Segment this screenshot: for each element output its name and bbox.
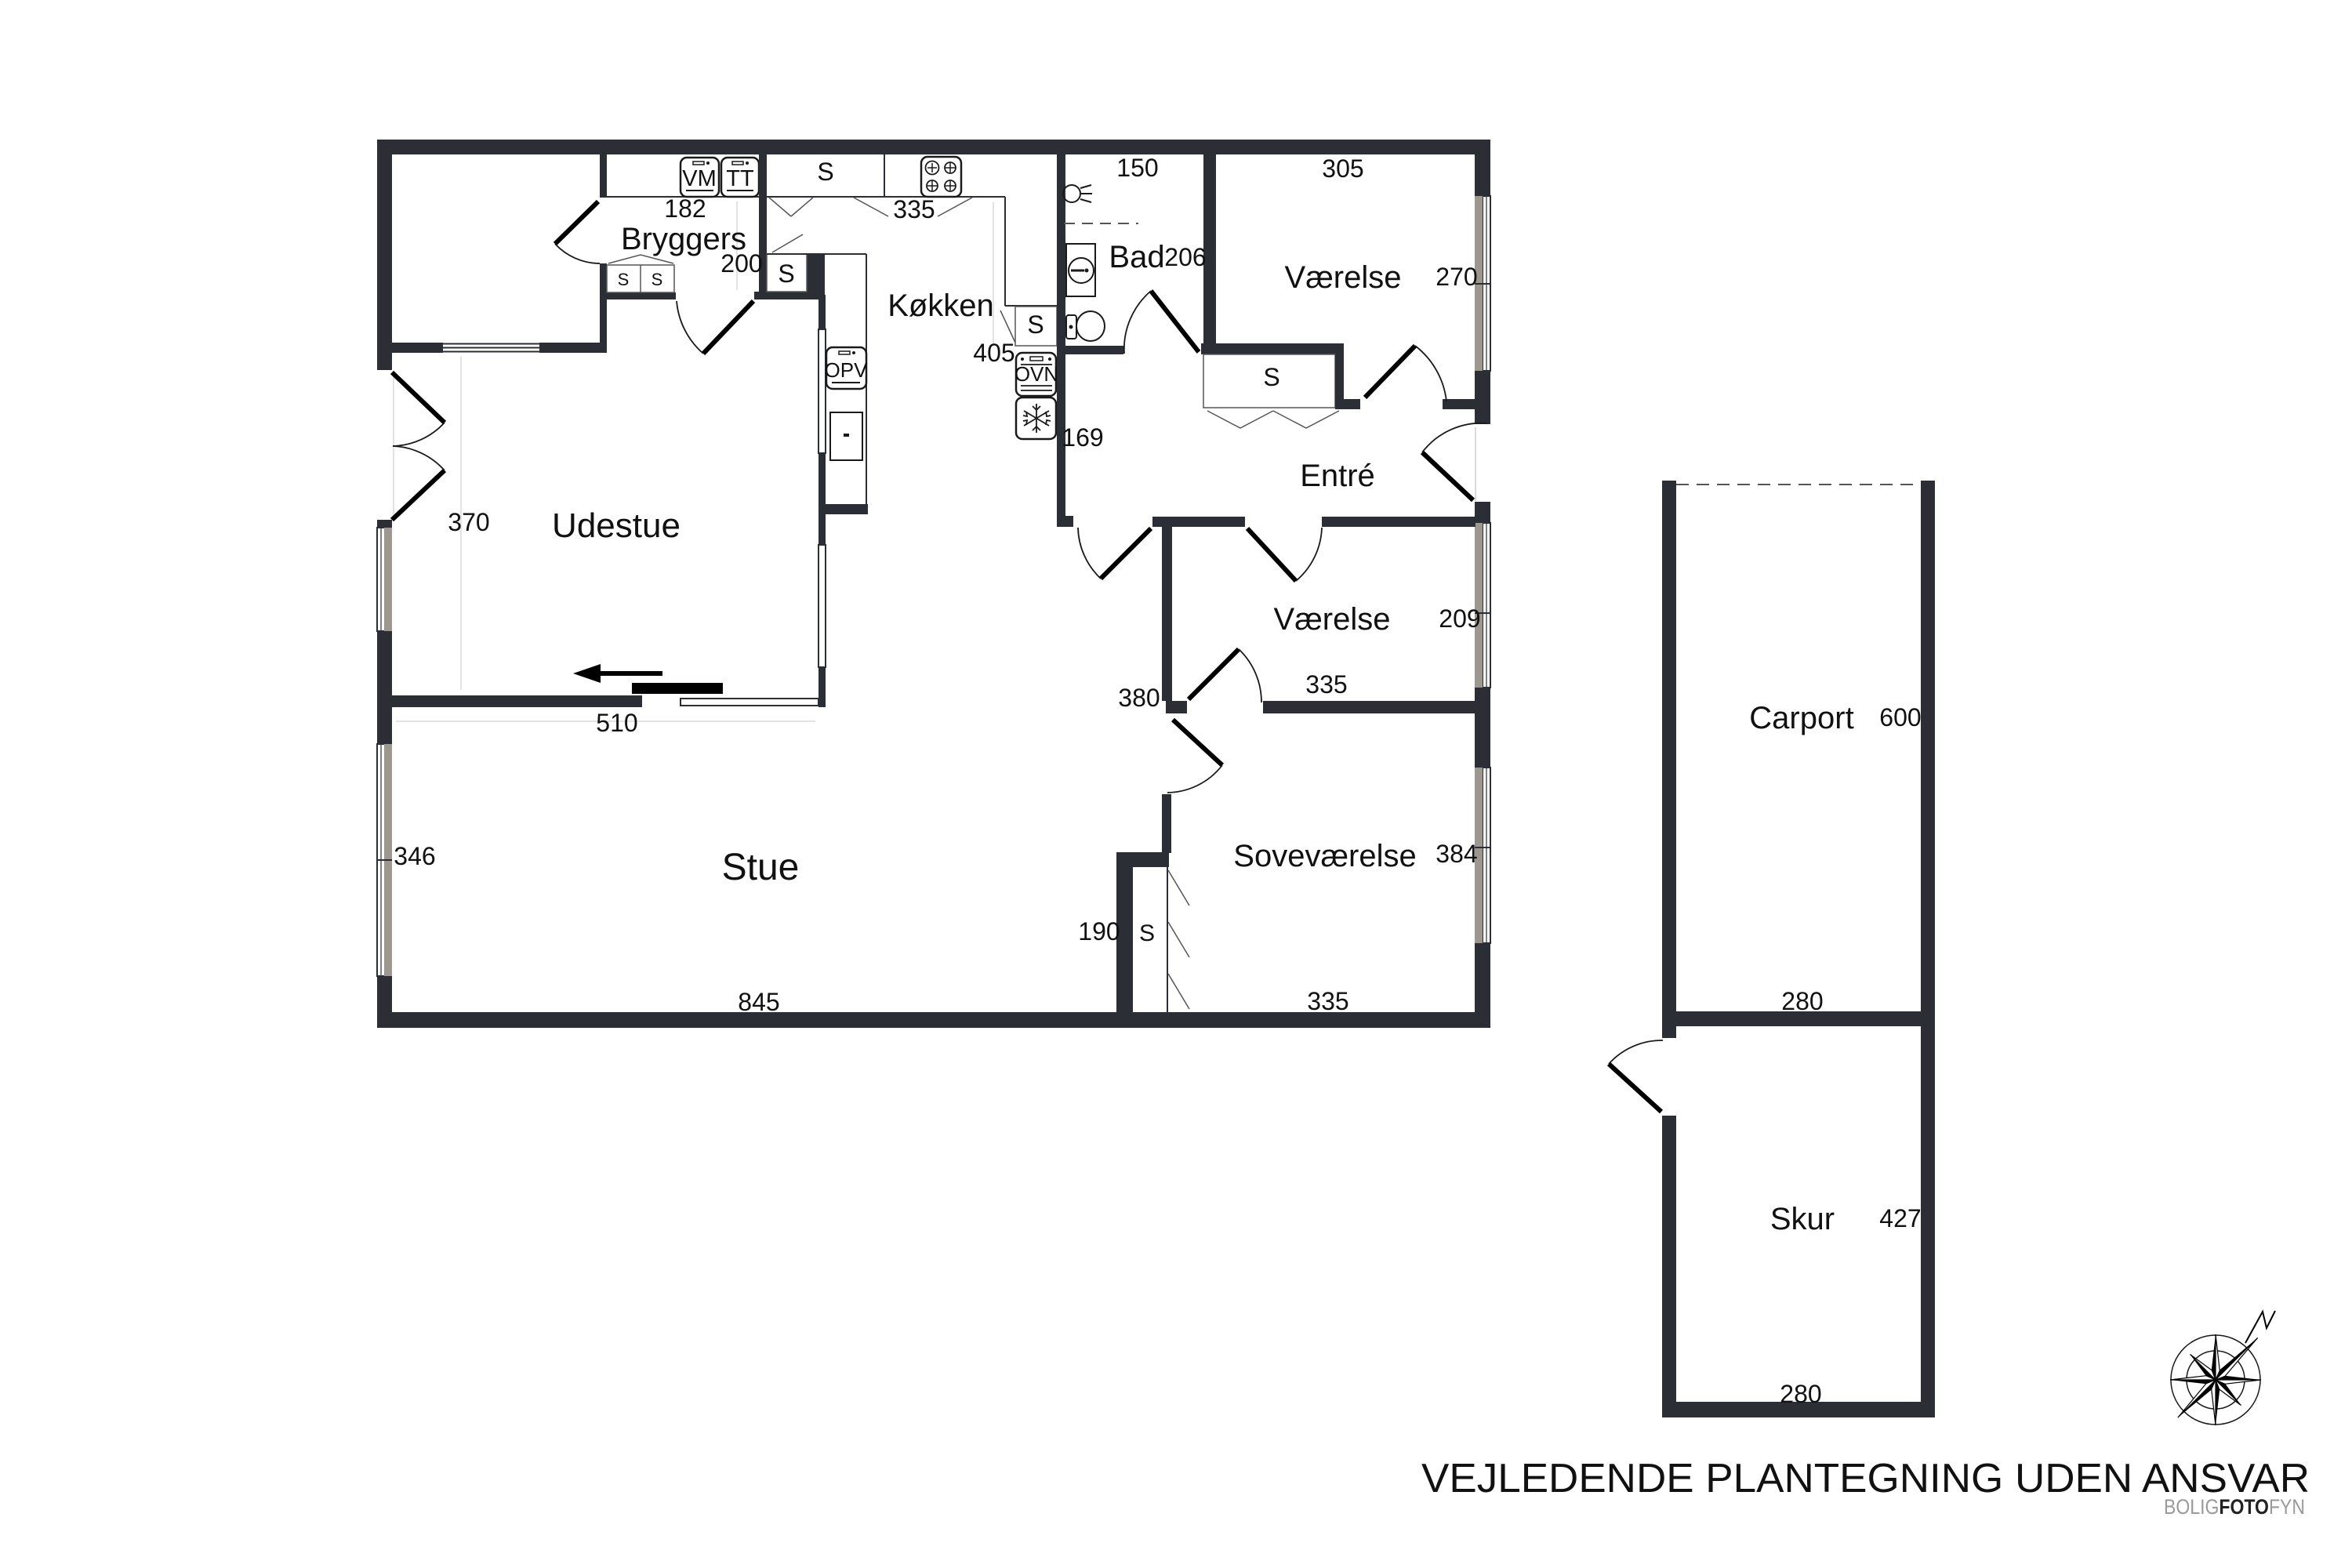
svg-text:Carport: Carport [1749,701,1853,735]
svg-text:BOLIGFOTOFYN: BOLIGFOTOFYN [2164,1495,2305,1519]
svg-text:Værelse: Værelse [1274,602,1391,637]
svg-text:335: 335 [1305,670,1347,699]
svg-text:845: 845 [738,988,779,1016]
svg-text:380: 380 [1118,684,1160,712]
svg-text:335: 335 [1307,987,1348,1015]
svg-text:370: 370 [448,508,489,536]
svg-text:405: 405 [973,339,1014,367]
svg-text:206: 206 [1164,243,1206,271]
svg-text:384: 384 [1436,840,1477,868]
svg-text:Køkken: Køkken [887,289,994,323]
svg-text:Udestue: Udestue [552,506,681,545]
svg-text:S: S [1263,363,1279,391]
svg-text:S: S [652,270,663,289]
svg-text:S: S [1139,920,1155,946]
svg-text:600: 600 [1879,703,1921,731]
svg-text:209: 209 [1439,604,1480,633]
svg-text:Entré: Entré [1300,459,1375,493]
svg-text:Bad: Bad [1109,240,1164,274]
svg-text:305: 305 [1322,154,1363,183]
svg-text:S: S [817,158,833,186]
svg-text:VM: VM [682,166,717,191]
svg-text:190: 190 [1078,917,1120,946]
svg-text:S: S [618,270,630,289]
svg-text:Soveværelse: Soveværelse [1233,839,1416,873]
svg-text:280: 280 [1780,1380,1821,1408]
svg-text:TT: TT [726,166,754,191]
svg-text:169: 169 [1062,423,1103,452]
svg-text:335: 335 [893,195,935,223]
svg-text:510: 510 [596,709,637,737]
svg-text:OPV: OPV [825,358,869,382]
svg-text:280: 280 [1781,987,1823,1015]
svg-text:Stue: Stue [722,847,800,888]
svg-text:346: 346 [394,842,435,870]
svg-text:S: S [1027,310,1044,339]
svg-text:OVN: OVN [1014,362,1058,386]
svg-text:Værelse: Værelse [1285,260,1402,295]
svg-text:150: 150 [1116,154,1158,182]
svg-text:S: S [778,260,794,288]
svg-text:427: 427 [1879,1204,1921,1232]
svg-text:270: 270 [1436,263,1477,291]
svg-text:182: 182 [664,194,706,223]
svg-text:200: 200 [720,249,762,278]
svg-text:Skur: Skur [1770,1202,1835,1236]
